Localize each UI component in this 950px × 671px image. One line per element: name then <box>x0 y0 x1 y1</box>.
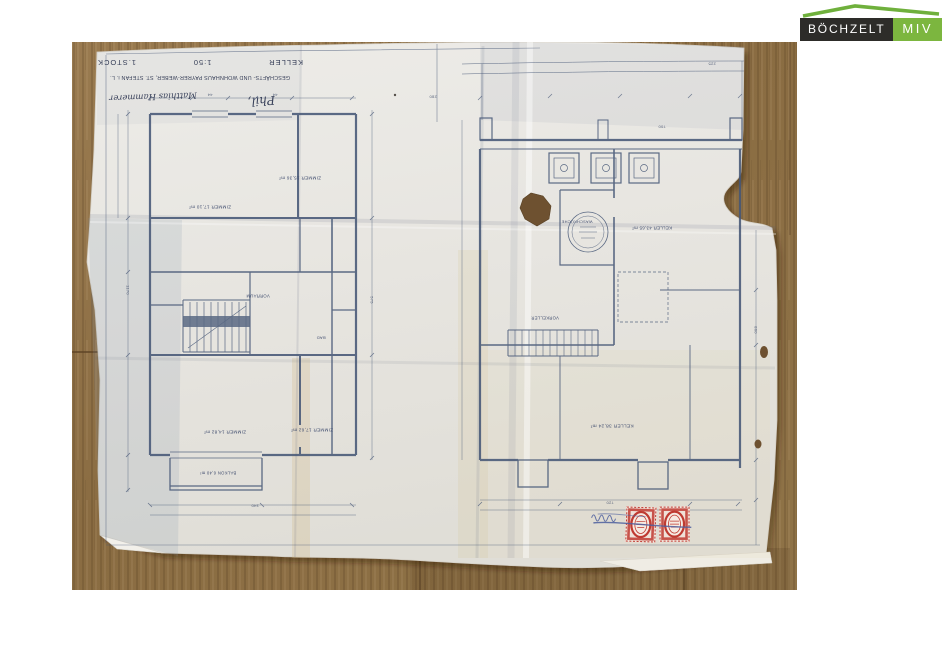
revenue-stamp <box>659 506 690 542</box>
signature-row: Phil, Matthias Hammerer <box>95 84 305 108</box>
blueprint-paper <box>87 42 777 571</box>
plan-name-stock: 1.STOCK <box>97 58 136 67</box>
signature-1: Phil, <box>247 93 275 109</box>
signature-2: Matthias Hammerer <box>109 89 197 109</box>
scanned-floorplan-page: BÖCHZELT MIV <box>0 0 950 671</box>
plan-name-keller: KELLER <box>268 58 303 67</box>
scale-row: KELLER 1:50 1.STOCK <box>95 58 305 67</box>
drawing-scale: 1:50 <box>193 58 212 67</box>
project-title: GESCHÄFTS- UND WOHNHAUS PAYRER-WEBER, ST… <box>95 74 305 80</box>
title-block: Phil, Matthias Hammerer GESCHÄFTS- UND W… <box>95 46 305 108</box>
